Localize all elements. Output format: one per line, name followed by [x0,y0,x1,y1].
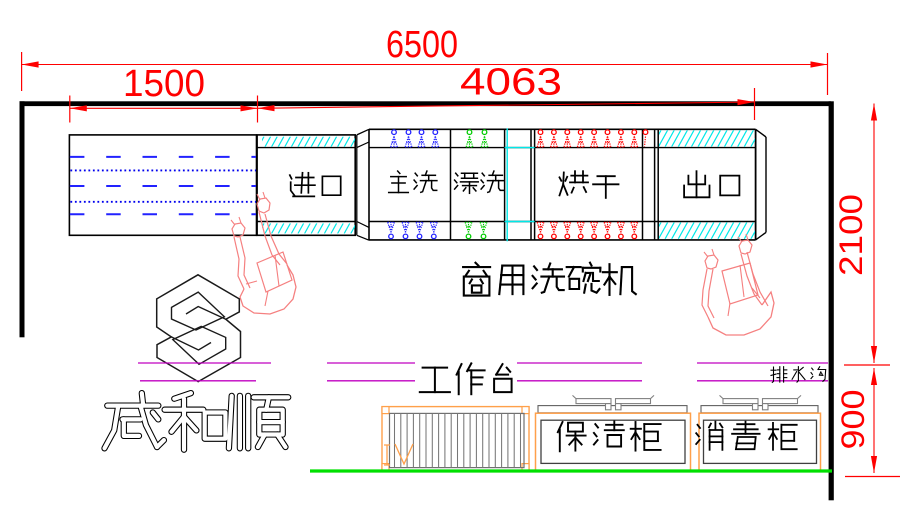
svg-text:900: 900 [835,390,871,450]
svg-text:4063: 4063 [460,62,562,104]
svg-text:1500: 1500 [123,63,205,105]
svg-text:6500: 6500 [386,24,458,66]
svg-text:2100: 2100 [833,194,869,276]
